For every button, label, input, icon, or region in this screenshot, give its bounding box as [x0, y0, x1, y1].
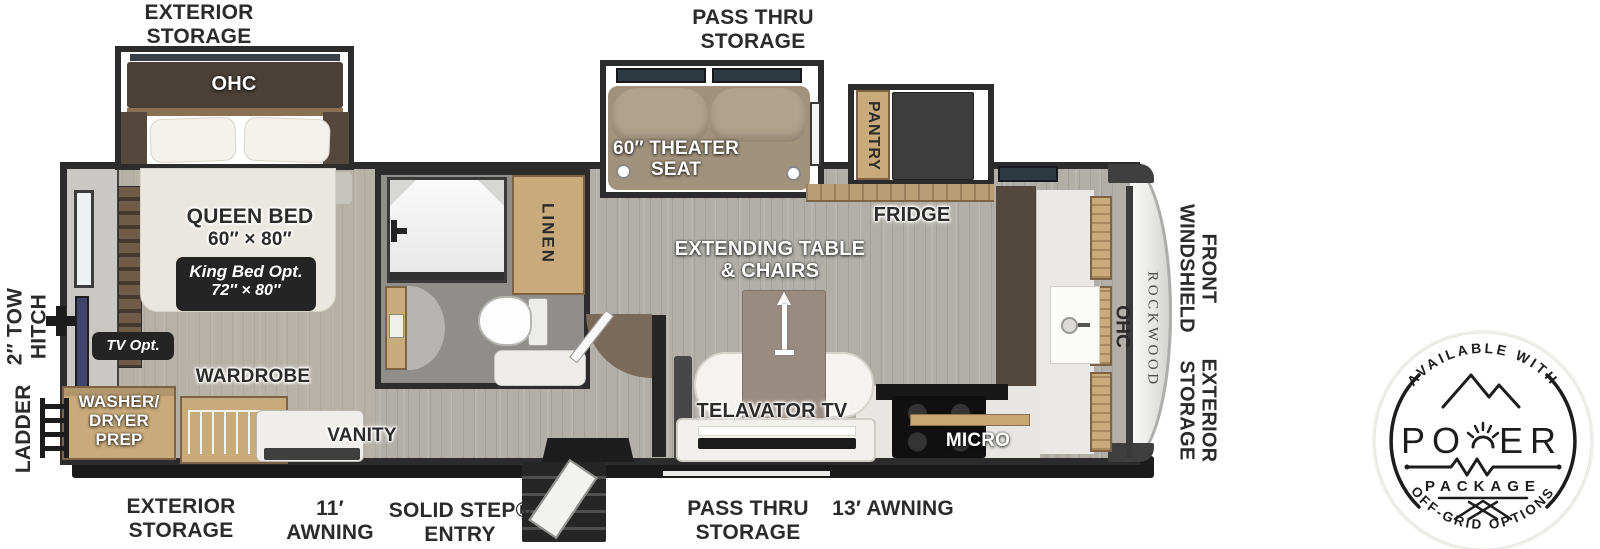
- front-ohc-lower: [1090, 372, 1112, 452]
- cutting-board: [910, 414, 1030, 426]
- front-ohc-upper: [1090, 196, 1112, 280]
- kitchen-faucet: [1078, 323, 1090, 327]
- fireplace-appliance: [542, 438, 634, 462]
- awning-13-label: 13′ AWNING: [798, 497, 988, 521]
- front-ohc-label: OHC: [1111, 297, 1132, 357]
- chassis-rail-trim: [663, 471, 830, 476]
- vanity-sink-top: [264, 448, 360, 460]
- ladder-icon-rung-1: [40, 404, 69, 409]
- bedroom-ohc-shelf: [127, 108, 343, 116]
- theater-window-right: [712, 68, 802, 83]
- theater-seat-back-left: [612, 88, 708, 142]
- exterior-storage-right-label: EXTERIORSTORAGE: [1175, 345, 1220, 475]
- entry-door-frame: [652, 315, 666, 457]
- theater-window-left: [616, 68, 706, 83]
- theater-seat-label: 60″ THEATERSEAT: [576, 138, 776, 181]
- rv-floorplan: ROCKWOOD OHC QUEEN BED60″ × 80″ King Bed…: [0, 0, 1600, 549]
- tv-option-callout: TV Opt.: [92, 332, 174, 360]
- front-windshield-label: FRONTWINDSHIELD: [1175, 188, 1220, 348]
- kitchen-counter-top: [806, 184, 994, 202]
- badge-power-prefix: PO: [1401, 420, 1467, 461]
- fridge: [892, 92, 974, 180]
- rear-window: [74, 190, 94, 288]
- tv-shelf: [698, 426, 856, 436]
- pillow-left: [149, 117, 236, 164]
- linen-label: LINEN: [538, 194, 557, 274]
- nightstand-left: [121, 112, 147, 164]
- pillow-right: [243, 117, 330, 164]
- bath-sink-basin: [389, 314, 404, 338]
- vanity-label: VANITY: [302, 425, 422, 446]
- brand-logo: ROCKWOOD: [1144, 264, 1161, 394]
- extending-table-label: EXTENDING TABLE& CHAIRS: [645, 238, 895, 283]
- toilet-bowl: [478, 296, 532, 346]
- micro-label: MICRO: [918, 430, 1038, 451]
- badge-package: PACKAGE: [1425, 478, 1541, 495]
- fridge-label: FRIDGE: [852, 204, 972, 226]
- theater-side-window: [810, 102, 821, 166]
- front-cap-corner-top: [1108, 164, 1154, 183]
- king-bed-option-callout: King Bed Opt.72″ × 80″: [176, 257, 316, 311]
- wardrobe-label: WARDROBE: [163, 366, 343, 387]
- bedroom-ohc-label: OHC: [134, 73, 334, 95]
- bedroom-slide-window: [130, 54, 340, 61]
- pantry-label: PANTRY: [864, 91, 882, 181]
- ladder-icon-rung-4: [40, 446, 69, 451]
- front-windows: [998, 166, 1058, 182]
- tv-screen: [698, 438, 856, 449]
- shower-door-track: [390, 272, 504, 280]
- solid-step-entry-label: SOLID STEP®ENTRY: [362, 499, 558, 546]
- telavator-tv-label: TELAVATOR TV: [672, 400, 872, 422]
- arrow-up-icon-base: [775, 350, 794, 355]
- ladder-label: LADDER: [12, 374, 36, 484]
- theater-cupholder-right: [786, 166, 801, 181]
- arrow-up-icon-shaft: [782, 304, 787, 352]
- queen-bed-label: QUEEN BED60″ × 80″: [160, 205, 340, 250]
- washer-dryer-label: WASHER/DRYERPREP: [60, 392, 178, 449]
- rear-tv: [75, 296, 89, 388]
- kitchen-sink: [1061, 317, 1078, 334]
- exterior-storage-top-label: EXTERIORSTORAGE: [106, 1, 292, 48]
- tow-hitch-label: 2″ TOWHITCH: [3, 262, 50, 392]
- shower-head-icon-arm: [391, 228, 407, 234]
- ladder-icon-rung-3: [40, 432, 69, 437]
- theater-seat-back-right: [710, 88, 806, 142]
- pass-thru-top-label: PASS THRUSTORAGE: [660, 6, 846, 53]
- ladder-icon-rung-2: [40, 418, 69, 423]
- power-package-badge: AVAILABLE WITH PO ER PACKAGE OFF-GRID OP…: [1366, 324, 1600, 549]
- badge-power-suffix: ER: [1499, 420, 1563, 461]
